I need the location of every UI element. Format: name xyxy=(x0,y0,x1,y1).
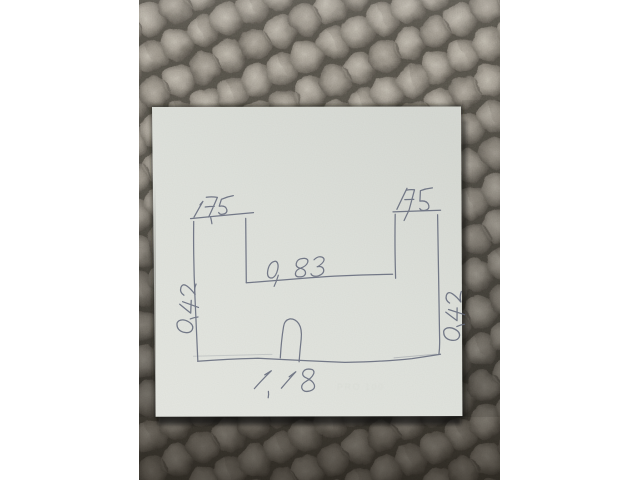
svg-text:PRO 100: PRO 100 xyxy=(337,382,385,392)
